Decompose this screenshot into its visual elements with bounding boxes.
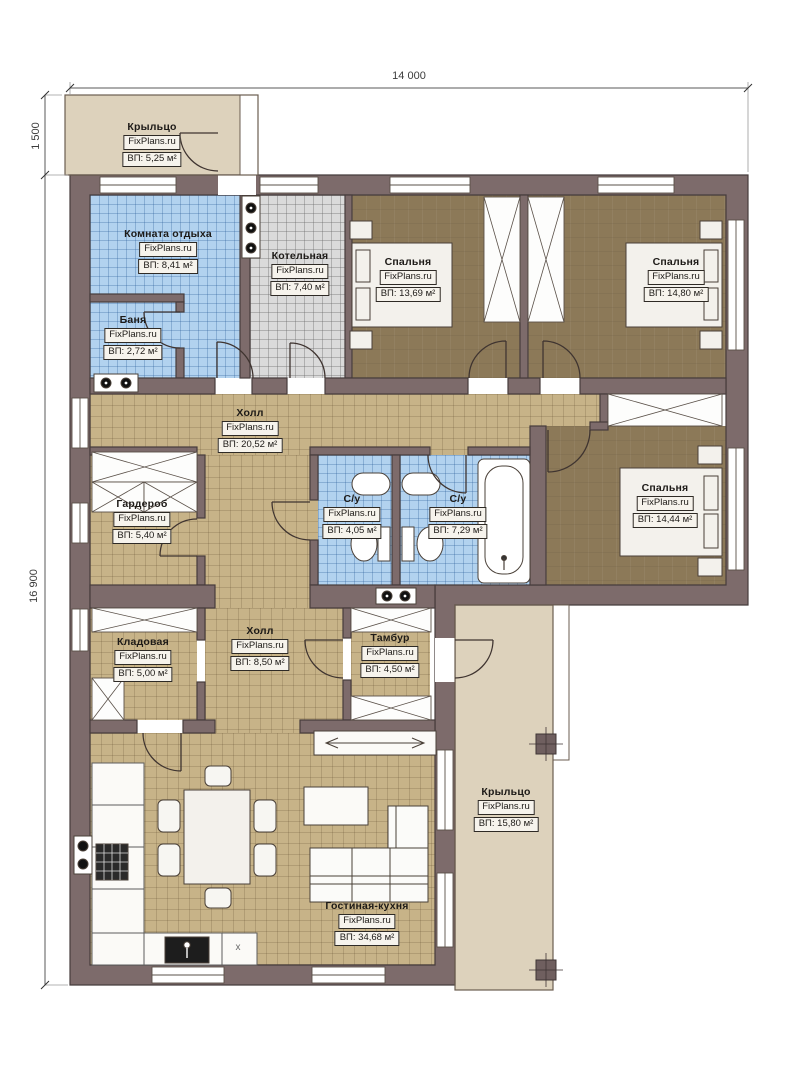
- room-brand: FixPlans.ru: [104, 328, 162, 343]
- room-brand: FixPlans.ru: [477, 800, 535, 815]
- kitchen-sink: [165, 937, 209, 963]
- room-label-lounge: Комната отдыха FixPlans.ru ВП: 8,41 м²: [124, 228, 212, 274]
- room-area: ВП: 7,29 м²: [428, 524, 487, 539]
- room-brand: FixPlans.ru: [123, 135, 181, 150]
- room-brand: FixPlans.ru: [429, 507, 487, 522]
- room-label-boiler: Котельная FixPlans.ru ВП: 7,40 м²: [270, 250, 329, 296]
- room-label-bedroom2: Спальня FixPlans.ru ВП: 14,80 м²: [644, 256, 709, 302]
- room-name: Кладовая: [117, 636, 169, 648]
- room-brand: FixPlans.ru: [221, 421, 279, 436]
- room-area: ВП: 4,05 м²: [322, 524, 381, 539]
- kitchen-x-marker: x: [236, 942, 241, 953]
- room-brand: FixPlans.ru: [338, 914, 396, 929]
- room-label-bath: Баня Баня FixPlans.ru ВП: 2,72 м²: [103, 314, 162, 360]
- room-brand: FixPlans.ru: [647, 270, 705, 285]
- room-brand: FixPlans.ru: [271, 264, 329, 279]
- room-name: Комната отдыха: [124, 228, 212, 240]
- room-name: Холл: [246, 625, 273, 637]
- room-name: Спальня: [653, 256, 700, 268]
- sauna-stove: [94, 374, 138, 392]
- room-name: Крыльцо: [127, 121, 176, 133]
- room-area: ВП: 15,80 м²: [474, 817, 539, 832]
- room-brand: FixPlans.ru: [636, 496, 694, 511]
- room-name: Баня: [120, 314, 147, 326]
- room-label-hall-main: Холл FixPlans.ru ВП: 20,52 м²: [218, 407, 283, 453]
- dimension-height-porch: 1 500: [30, 122, 42, 150]
- room-area: ВП: 4,50 м²: [360, 663, 419, 678]
- dining-table: [184, 790, 250, 884]
- room-area: ВП: 2,72 м²: [103, 345, 162, 360]
- room-label-hall-small: Холл FixPlans.ru ВП: 8,50 м²: [230, 625, 289, 671]
- coffee-table: [304, 787, 368, 825]
- room-label-bedroom3: Спальня FixPlans.ru ВП: 14,44 м²: [633, 482, 698, 528]
- room-brand: FixPlans.ru: [114, 650, 172, 665]
- room-label-storage: Кладовая FixPlans.ru ВП: 5,00 м²: [113, 636, 172, 682]
- room-name: Спальня: [642, 482, 689, 494]
- room-area: ВП: 7,40 м²: [270, 281, 329, 296]
- room-label-porch-top: Крыльцо FixPlans.ru ВП: 5,25 м²: [122, 121, 181, 167]
- room-area: ВП: 14,44 м²: [633, 513, 698, 528]
- room-brand: FixPlans.ru: [361, 646, 419, 661]
- room-area: ВП: 20,52 м²: [218, 438, 283, 453]
- room-label-wc-small: С/у FixPlans.ru ВП: 4,05 м²: [322, 493, 381, 539]
- room-brand: FixPlans.ru: [139, 242, 197, 257]
- room-label-bedroom1: Спальня FixPlans.ru ВП: 13,69 м²: [376, 256, 441, 302]
- room-label-porch-bottom: Крыльцо FixPlans.ru ВП: 15,80 м²: [474, 786, 539, 832]
- dimension-height-main: 16 900: [28, 569, 40, 603]
- tv-console: [314, 731, 436, 755]
- room-name: Гостиная-кухня: [325, 900, 408, 912]
- room-name: Холл: [236, 407, 263, 419]
- room-area: ВП: 34,68 м²: [335, 931, 400, 946]
- floor-plan: Крыльцо FixPlans.ru ВП: 5,25 м² Комната …: [0, 0, 792, 1080]
- room-name: С/у: [344, 493, 361, 505]
- room-area: ВП: 13,69 м²: [376, 287, 441, 302]
- room-area: ВП: 8,50 м²: [230, 656, 289, 671]
- room-label-living: Гостиная-кухня FixPlans.ru ВП: 34,68 м²: [325, 900, 408, 946]
- room-label-wardrobe: Гардероб FixPlans.ru ВП: 5,40 м²: [112, 498, 171, 544]
- column-axis-ticks: [529, 727, 563, 987]
- room-brand: FixPlans.ru: [231, 639, 289, 654]
- room-name: Крыльцо: [481, 786, 530, 798]
- room-name: Гардероб: [116, 498, 167, 510]
- room-name: Спальня: [385, 256, 432, 268]
- room-area: ВП: 5,40 м²: [112, 529, 171, 544]
- room-brand: FixPlans.ru: [113, 512, 171, 527]
- room-name: С/у: [450, 493, 467, 505]
- room-area: ВП: 8,41 м²: [138, 259, 197, 274]
- room-brand: FixPlans.ru: [379, 270, 437, 285]
- room-name: Котельная: [272, 250, 329, 262]
- room-label-tambour: Тамбур FixPlans.ru ВП: 4,50 м²: [360, 632, 419, 678]
- wc-outlet-dots: [376, 588, 416, 604]
- room-brand: FixPlans.ru: [323, 507, 381, 522]
- room-area: ВП: 5,00 м²: [113, 667, 172, 682]
- dimension-width-total: 14 000: [392, 70, 426, 82]
- room-name: Тамбур: [370, 632, 409, 644]
- room-label-wc-big: С/у FixPlans.ru ВП: 7,29 м²: [428, 493, 487, 539]
- room-area: ВП: 14,80 м²: [644, 287, 709, 302]
- boiler-equipment: [242, 196, 260, 258]
- room-area: ВП: 5,25 м²: [122, 152, 181, 167]
